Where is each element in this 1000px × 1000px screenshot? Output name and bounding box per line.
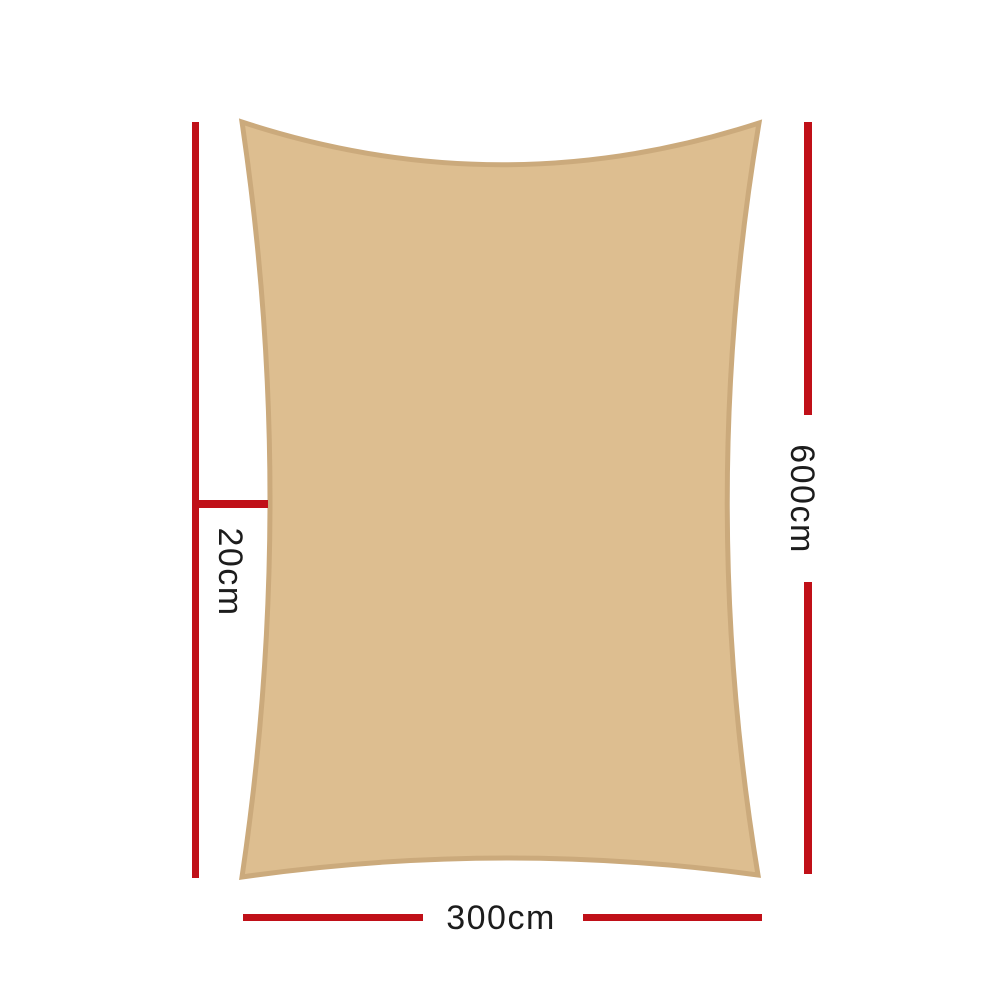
shade-sail-shape	[242, 122, 759, 877]
dimension-label-600cm: 600cm	[783, 444, 821, 554]
dimension-diagram-svg: 20cm 600cm 300cm	[0, 0, 1000, 1000]
dimension-label-300cm: 300cm	[446, 899, 556, 937]
dimension-line-bottom-right	[583, 914, 762, 921]
dimension-line-right-lower	[804, 582, 812, 874]
dimension-tick-20cm	[192, 500, 268, 508]
product-dimension-diagram: 20cm 600cm 300cm	[0, 0, 1000, 1000]
dimension-line-bottom-left	[243, 914, 423, 921]
dimension-label-20cm: 20cm	[211, 527, 249, 616]
dimension-line-right-upper	[804, 122, 812, 415]
